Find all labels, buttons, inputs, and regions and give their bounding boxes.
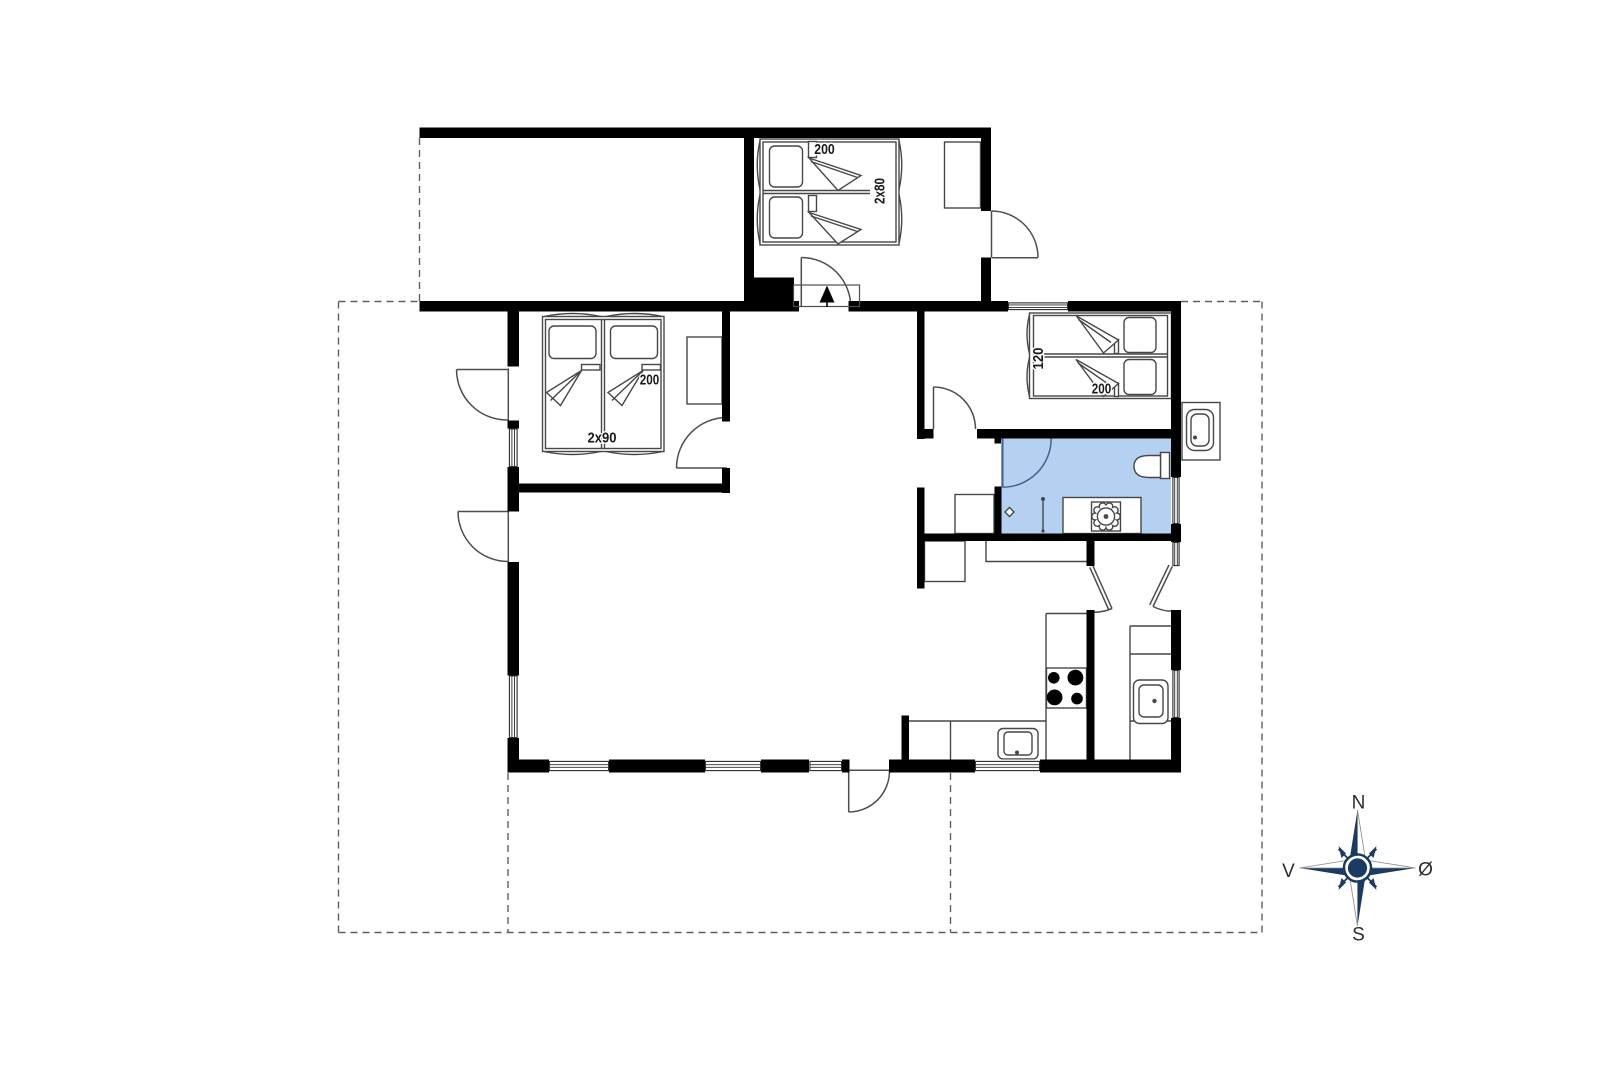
svg-text:120: 120 <box>1030 348 1047 370</box>
svg-text:V: V <box>1282 861 1295 882</box>
svg-text:2x90: 2x90 <box>588 430 617 447</box>
svg-text:200: 200 <box>814 141 835 158</box>
svg-text:N: N <box>1352 793 1366 814</box>
svg-text:2x80: 2x80 <box>872 178 889 204</box>
svg-text:Ø: Ø <box>1418 860 1433 881</box>
svg-text:200: 200 <box>1092 381 1112 398</box>
svg-text:S: S <box>1352 925 1365 946</box>
svg-text:200: 200 <box>640 372 660 389</box>
